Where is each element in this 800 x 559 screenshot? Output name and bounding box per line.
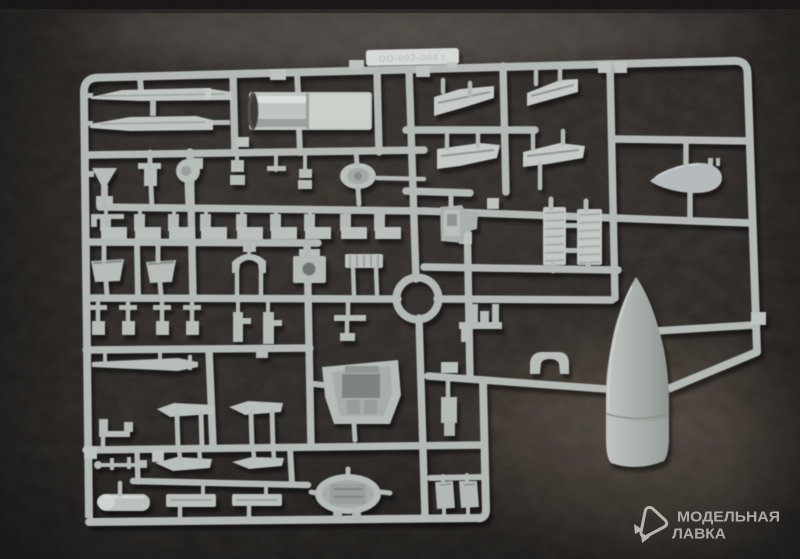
svg-text:МОДЕЛЬНАЯ: МОДЕЛЬНАЯ — [677, 509, 780, 526]
svg-text:ЛАВКА: ЛАВКА — [672, 526, 726, 543]
